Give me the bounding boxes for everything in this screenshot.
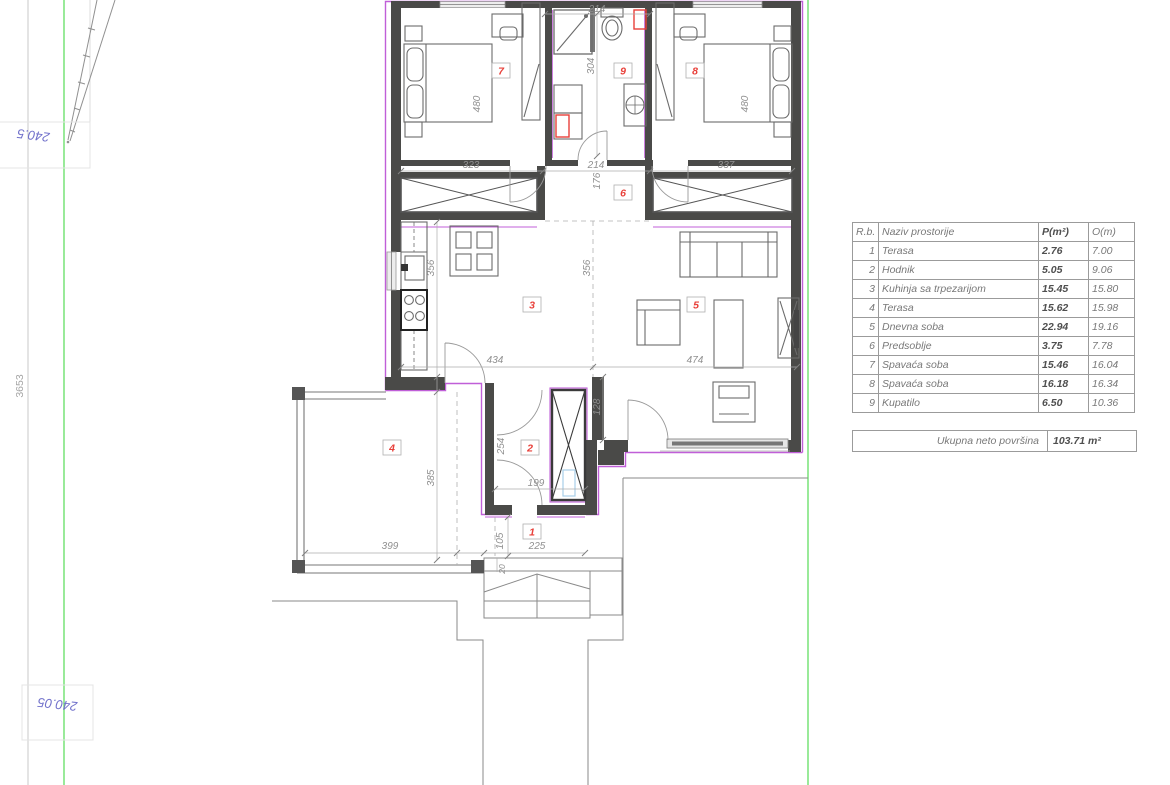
door-living-terrace: [628, 400, 668, 440]
svg-text:1: 1: [529, 527, 535, 539]
dim-199: 199: [528, 478, 545, 489]
table-row: 6 Predsoblje 3.75 7.78: [853, 337, 1134, 356]
room-schedule-table: R.b. Naziv prostorije P(m²) O(m) 1 Teras…: [852, 222, 1135, 413]
desk-room8: [674, 14, 705, 40]
header-perimeter: O(m): [1089, 223, 1134, 241]
walkway-right-edge: [588, 478, 808, 785]
lounge-chair: [713, 382, 755, 422]
stove: [401, 290, 427, 330]
svg-text:3: 3: [529, 300, 535, 312]
table-row: 5 Dnevna soba 22.94 19.16: [853, 318, 1134, 337]
terrace-post: [292, 560, 305, 573]
room-number-labels: 1 2 3 4 5 6 7 8: [383, 63, 705, 539]
dim-20: 20: [497, 564, 507, 575]
dim-254: 254: [496, 437, 507, 455]
svg-text:9: 9: [620, 66, 626, 78]
table-row: 3 Kuhinja sa trpezarijom 15.45 15.80: [853, 280, 1134, 299]
dim-214-top: 214: [588, 4, 606, 15]
table-row: 4 Terasa 15.62 15.98: [853, 299, 1134, 318]
floorplan-sheet: { "plan": { "room_numbers": ["1","2","3"…: [0, 0, 1170, 785]
hall-wardrobe: [552, 390, 585, 500]
dim-225: 225: [528, 541, 546, 552]
dim-399: 399: [382, 541, 399, 552]
dim-385: 385: [426, 469, 437, 486]
site-boundary-length: 3653: [14, 374, 26, 398]
tall-closet-room7: [522, 3, 540, 120]
room-label-8: 8: [686, 63, 704, 78]
window-kitchen-left: [387, 252, 396, 290]
svg-text:8: 8: [692, 66, 698, 78]
room-label-6: 6: [614, 185, 632, 200]
desk-room7: [492, 14, 523, 40]
door-hall-top: [497, 390, 542, 435]
dim-323: 323: [463, 160, 480, 171]
bed-room8: [704, 26, 792, 137]
dim-304: 304: [586, 57, 597, 74]
header-name: Naziv prostorije: [879, 223, 1039, 241]
dining-table: [450, 226, 498, 276]
terrace-post: [471, 560, 484, 573]
dim-474: 474: [687, 355, 704, 366]
header-area: P(m²): [1039, 223, 1089, 241]
kitchen-counter: [401, 222, 427, 370]
table-row: 2 Hodnik 5.05 9.06: [853, 261, 1134, 280]
dim-337: 337: [718, 160, 735, 171]
shower: [554, 10, 592, 54]
table-row: 1 Terasa 2.76 7.00: [853, 242, 1134, 261]
room-label-2: 2: [521, 440, 539, 455]
total-area-value: 103.71 m²: [1048, 431, 1136, 451]
table-row: 9 Kupatilo 6.50 10.36: [853, 394, 1134, 413]
walkway-left-edge: [272, 601, 483, 785]
room-label-5: 5: [687, 297, 705, 312]
window-top-right: [693, 2, 762, 8]
door-kitchen: [445, 343, 485, 383]
bathroom-sink: [624, 84, 646, 126]
closet-left: [401, 178, 537, 212]
room-label-3: 3: [523, 297, 541, 312]
room-label-9: 9: [614, 63, 632, 78]
total-area-box: Ukupna neto površina 103.71 m²: [852, 430, 1137, 452]
bed-room7: [404, 26, 492, 137]
room-label-4: 4: [383, 440, 401, 455]
table-row: 8 Spavaća soba 16.18 16.34: [853, 375, 1134, 394]
dim-480-left: 480: [472, 95, 483, 112]
terrace-post: [292, 387, 305, 400]
window-living-south: [660, 439, 790, 451]
total-area-label: Ukupna neto površina: [853, 431, 1048, 451]
dim-480-right: 480: [740, 95, 751, 112]
room-label-7: 7: [492, 63, 510, 78]
dim-105: 105: [495, 532, 506, 549]
svg-text:5: 5: [693, 300, 699, 312]
dim-176: 176: [592, 172, 603, 189]
dim-356-right: 356: [582, 259, 593, 276]
elevation-value-top: 240.5: [16, 126, 52, 145]
sofa: [680, 232, 777, 277]
washing-machine: [554, 85, 582, 139]
table-row: 7 Spavaća soba 15.46 16.04: [853, 356, 1134, 375]
elevation-value-bottom: 240.05: [36, 695, 79, 714]
dim-128: 128: [592, 398, 603, 415]
radiator-hall: [556, 115, 569, 137]
window-top-left: [440, 2, 505, 8]
radiators: [556, 10, 646, 137]
svg-text:2: 2: [526, 443, 533, 455]
tall-closet-room8: [656, 3, 674, 120]
dim-434: 434: [487, 355, 504, 366]
coffee-table: [714, 300, 743, 368]
svg-text:4: 4: [388, 443, 395, 455]
header-rb: R.b.: [853, 223, 879, 241]
svg-text:6: 6: [620, 188, 626, 200]
room-label-1: 1: [523, 524, 541, 539]
table-header-row: R.b. Naziv prostorije P(m²) O(m): [853, 223, 1134, 242]
dim-214: 214: [587, 160, 605, 171]
armchair: [637, 300, 680, 345]
closet-right: [653, 178, 792, 212]
dim-356-left: 356: [426, 259, 437, 276]
